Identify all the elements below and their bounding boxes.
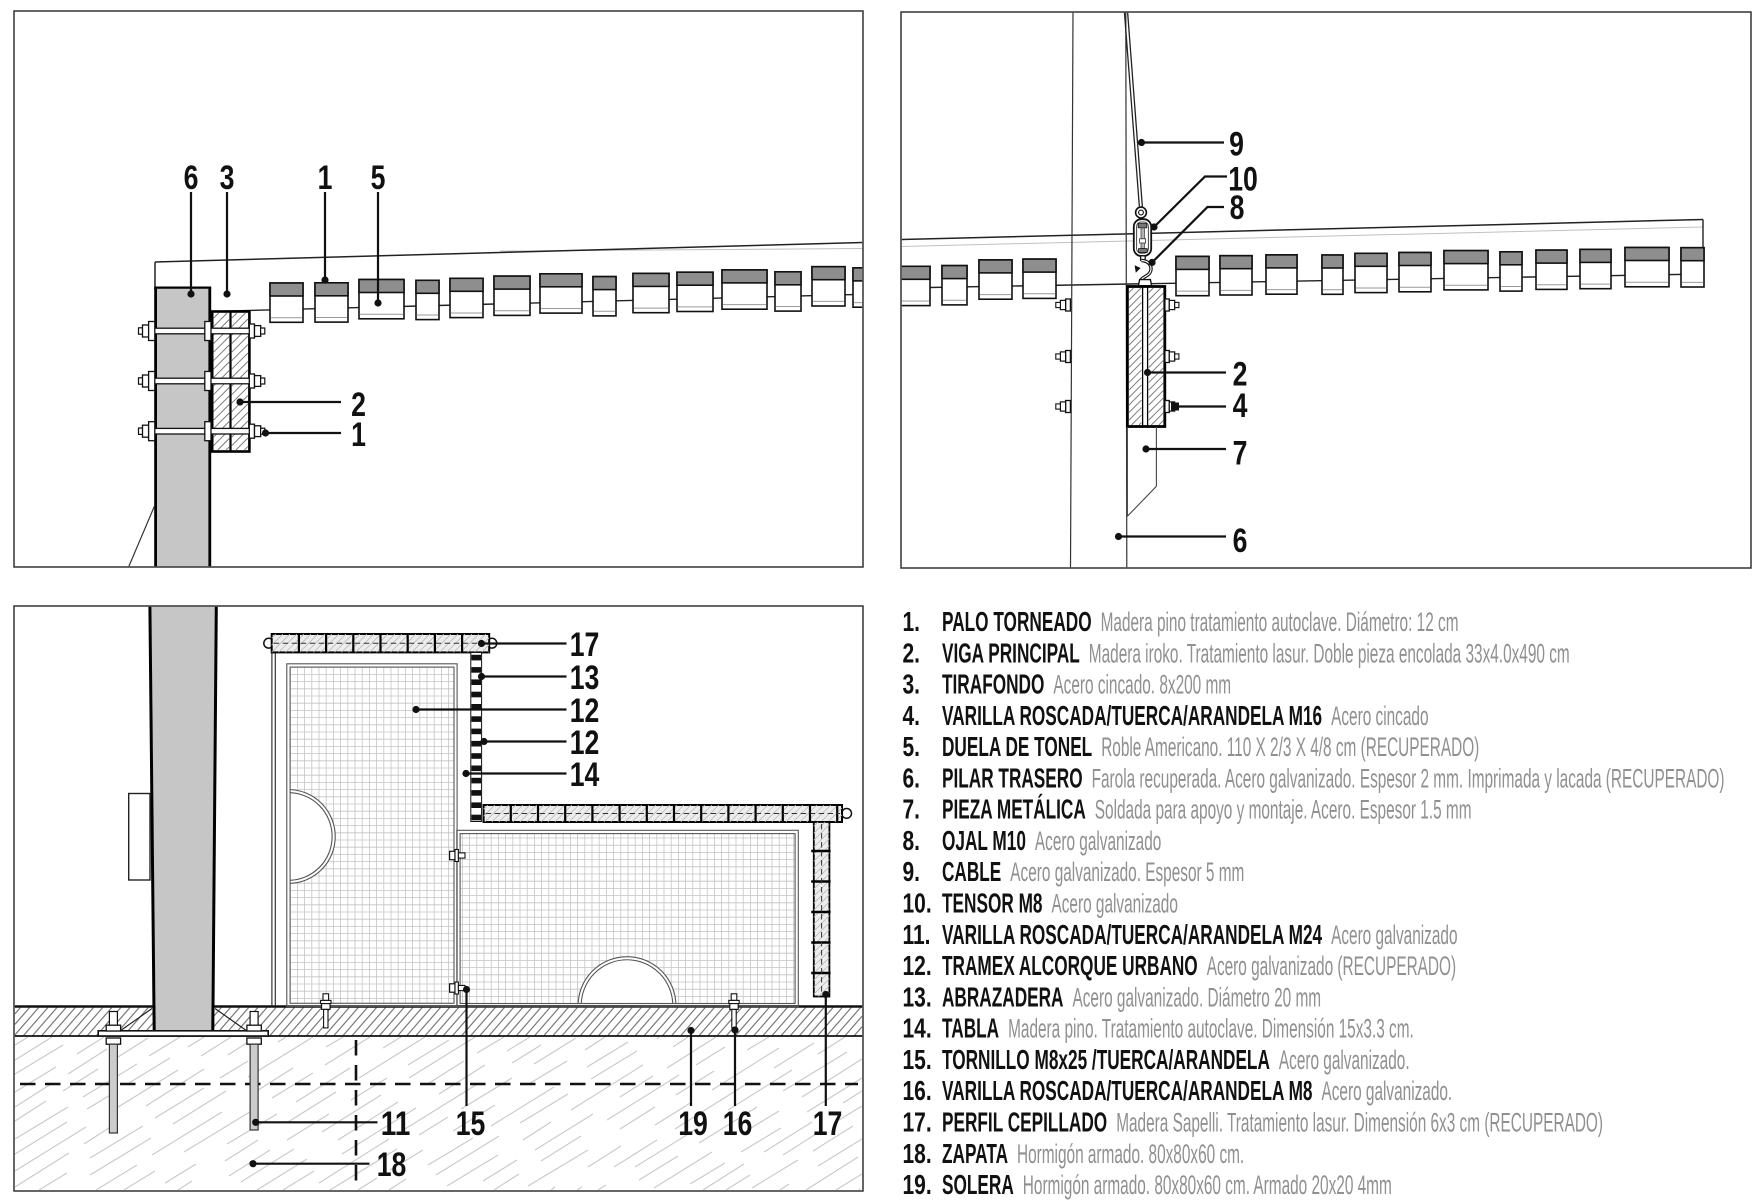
svg-text:PILAR TRASERO: PILAR TRASERO bbox=[942, 762, 1083, 793]
svg-text:Hormigón armado. 80x80x60 cm.: Hormigón armado. 80x80x60 cm. bbox=[1017, 1139, 1244, 1169]
svg-text:Acero galvanizado (RECUPERADO): Acero galvanizado (RECUPERADO) bbox=[1207, 951, 1456, 981]
svg-text:6.: 6. bbox=[903, 762, 921, 793]
svg-text:3: 3 bbox=[220, 159, 235, 197]
svg-text:1: 1 bbox=[351, 416, 366, 454]
svg-text:4: 4 bbox=[1233, 387, 1248, 425]
svg-text:Farola recuperada. Acero galva: Farola recuperada. Acero galvanizado. Es… bbox=[1092, 763, 1725, 793]
svg-text:14: 14 bbox=[570, 756, 600, 794]
svg-text:9: 9 bbox=[1229, 126, 1244, 164]
svg-text:17: 17 bbox=[813, 1105, 843, 1143]
svg-text:OJAL M10: OJAL M10 bbox=[942, 825, 1026, 856]
svg-text:Acero galvanizado: Acero galvanizado bbox=[1035, 826, 1161, 856]
svg-text:10.: 10. bbox=[903, 888, 932, 919]
svg-text:18: 18 bbox=[377, 1146, 407, 1184]
svg-text:VARILLA ROSCADA/TUERCA/ARANDEL: VARILLA ROSCADA/TUERCA/ARANDELA M24 bbox=[942, 919, 1322, 950]
svg-text:TABLA: TABLA bbox=[942, 1013, 999, 1044]
svg-text:Acero galvanizado. Diámetro 20: Acero galvanizado. Diámetro 20 mm bbox=[1073, 982, 1322, 1012]
svg-text:TIRAFONDO: TIRAFONDO bbox=[942, 669, 1044, 700]
svg-text:3.: 3. bbox=[903, 669, 921, 700]
svg-text:15.: 15. bbox=[903, 1044, 932, 1075]
svg-text:ZAPATA: ZAPATA bbox=[942, 1138, 1008, 1169]
svg-text:Roble Americano. 110 X 2/3 X 4: Roble Americano. 110 X 2/3 X 4/8 cm (REC… bbox=[1101, 732, 1479, 762]
svg-text:Acero galvanizado: Acero galvanizado bbox=[1331, 920, 1457, 950]
svg-text:Madera iroko. Tratamiento lasu: Madera iroko. Tratamiento lasur. Doble p… bbox=[1089, 638, 1570, 668]
svg-text:15: 15 bbox=[456, 1105, 486, 1143]
svg-text:17.: 17. bbox=[903, 1107, 932, 1138]
svg-text:TORNILLO M8x25 /TUERCA/ARANDEL: TORNILLO M8x25 /TUERCA/ARANDELA bbox=[942, 1044, 1270, 1075]
svg-text:Madera Sapelli. Tratamiento la: Madera Sapelli. Tratamiento lasur. Dimen… bbox=[1116, 1108, 1603, 1138]
svg-text:9.: 9. bbox=[903, 856, 921, 887]
svg-text:6: 6 bbox=[184, 159, 199, 197]
svg-text:16: 16 bbox=[723, 1105, 753, 1143]
svg-text:5: 5 bbox=[371, 159, 386, 197]
svg-text:TRAMEX ALCORQUE URBANO: TRAMEX ALCORQUE URBANO bbox=[942, 950, 1198, 981]
svg-text:14.: 14. bbox=[903, 1013, 932, 1044]
svg-text:19: 19 bbox=[678, 1105, 708, 1143]
svg-text:SOLERA: SOLERA bbox=[942, 1169, 1014, 1200]
svg-text:6: 6 bbox=[1233, 522, 1248, 560]
svg-text:7: 7 bbox=[1233, 435, 1248, 473]
svg-text:PALO TORNEADO: PALO TORNEADO bbox=[942, 606, 1092, 637]
svg-text:1.: 1. bbox=[903, 606, 921, 637]
svg-text:VIGA PRINCIPAL: VIGA PRINCIPAL bbox=[942, 637, 1080, 668]
svg-text:Hormigón armado. 80x80x60 cm.: Hormigón armado. 80x80x60 cm. Armado 20x… bbox=[1023, 1170, 1392, 1200]
svg-text:Madera pino tratamiento autocl: Madera pino tratamiento autoclave. Diáme… bbox=[1101, 607, 1459, 637]
svg-text:Madera pino. Tratamiento autoc: Madera pino. Tratamiento autoclave. Dime… bbox=[1008, 1014, 1414, 1044]
svg-text:Soldada para apoyo y montaje.: Soldada para apoyo y montaje. Acero. Esp… bbox=[1095, 795, 1472, 825]
svg-text:7.: 7. bbox=[903, 794, 921, 825]
svg-text:CABLE: CABLE bbox=[942, 856, 1001, 887]
svg-text:VARILLA ROSCADA/TUERCA/ARANDEL: VARILLA ROSCADA/TUERCA/ARANDELA M16 bbox=[942, 700, 1322, 731]
svg-text:8: 8 bbox=[1230, 189, 1245, 227]
svg-text:12.: 12. bbox=[903, 950, 932, 981]
svg-text:16.: 16. bbox=[903, 1075, 932, 1106]
svg-text:Acero galvanizado.: Acero galvanizado. bbox=[1322, 1076, 1453, 1106]
svg-text:18.: 18. bbox=[903, 1138, 932, 1169]
svg-text:Acero galvanizado.: Acero galvanizado. bbox=[1279, 1045, 1410, 1075]
svg-text:TENSOR M8: TENSOR M8 bbox=[942, 888, 1043, 919]
svg-text:DUELA DE TONEL: DUELA DE TONEL bbox=[942, 731, 1092, 762]
svg-text:2.: 2. bbox=[903, 637, 921, 668]
svg-text:19.: 19. bbox=[903, 1169, 932, 1200]
svg-text:Acero galvanizado: Acero galvanizado bbox=[1052, 889, 1178, 919]
svg-text:ABRAZADERA: ABRAZADERA bbox=[942, 981, 1064, 1012]
svg-text:Acero cincado: Acero cincado bbox=[1331, 701, 1428, 731]
svg-text:11.: 11. bbox=[903, 919, 931, 950]
svg-text:5.: 5. bbox=[903, 731, 921, 762]
svg-text:Acero galvanizado. Espesor 5 m: Acero galvanizado. Espesor 5 mm bbox=[1010, 857, 1244, 887]
svg-text:PIEZA METÁLICA: PIEZA METÁLICA bbox=[942, 794, 1086, 825]
svg-text:13.: 13. bbox=[903, 981, 932, 1012]
svg-text:8.: 8. bbox=[903, 825, 921, 856]
svg-text:VARILLA ROSCADA/TUERCA/ARANDEL: VARILLA ROSCADA/TUERCA/ARANDELA M8 bbox=[942, 1075, 1313, 1106]
svg-text:11: 11 bbox=[381, 1105, 411, 1143]
svg-text:PERFIL CEPILLADO: PERFIL CEPILLADO bbox=[942, 1107, 1107, 1138]
svg-text:Acero cincado. 8x200 mm: Acero cincado. 8x200 mm bbox=[1053, 670, 1231, 700]
svg-text:4.: 4. bbox=[903, 700, 921, 731]
svg-text:1: 1 bbox=[318, 159, 333, 197]
